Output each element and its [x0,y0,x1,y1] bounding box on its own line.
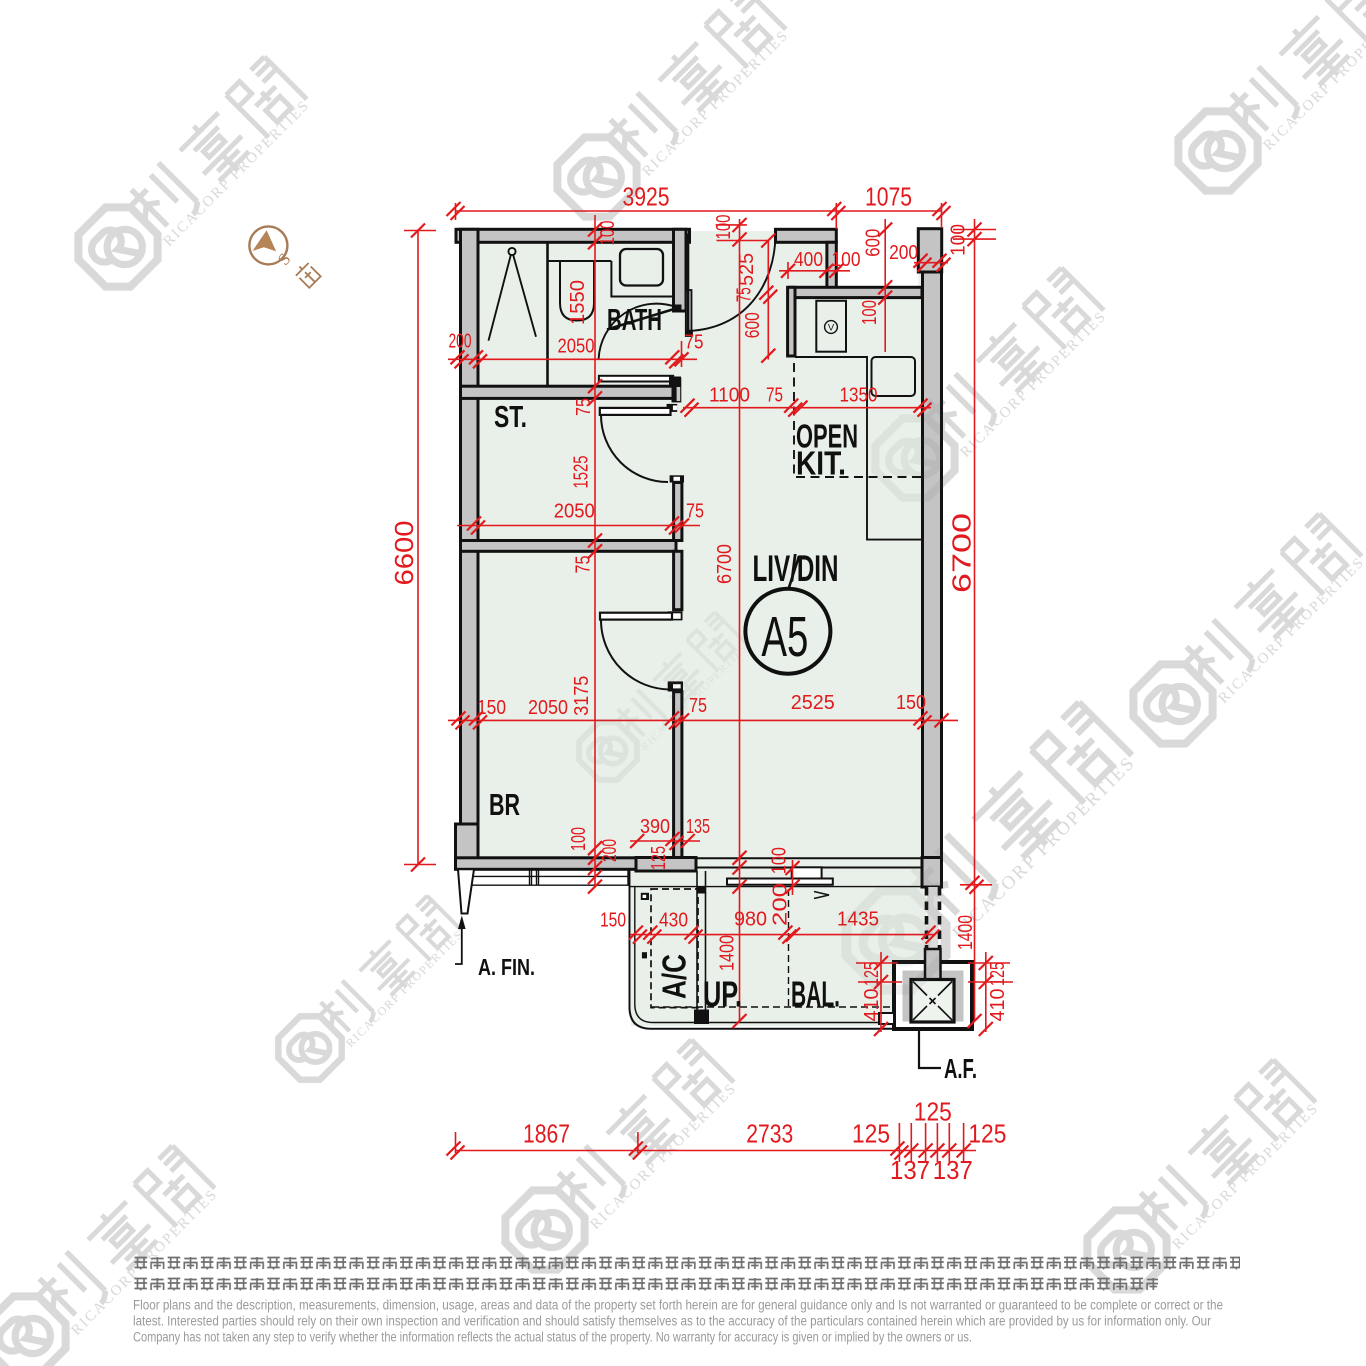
svg-text:200: 200 [598,839,621,862]
svg-text:6700: 6700 [713,544,736,584]
svg-text:75: 75 [572,556,595,574]
svg-text:6700: 6700 [947,513,977,593]
svg-text:2050: 2050 [528,696,568,719]
svg-text:410: 410 [986,989,1009,1022]
svg-text:1100: 1100 [709,384,750,407]
svg-text:2050: 2050 [554,499,595,522]
svg-text:A/C: A/C [656,954,693,999]
svg-text:390: 390 [640,815,670,838]
svg-text:1525: 1525 [570,456,593,489]
svg-text:150: 150 [896,691,926,714]
svg-text:200: 200 [769,883,792,926]
svg-text:A.F.: A.F. [944,1053,977,1084]
svg-text:A5: A5 [761,605,808,669]
svg-text:6600: 6600 [389,521,419,586]
svg-text:A. FIN.: A. FIN. [478,954,535,980]
svg-text:1350: 1350 [840,384,878,407]
svg-text:100: 100 [768,847,791,874]
svg-text:200: 200 [449,330,472,353]
svg-text:BR: BR [489,787,520,822]
svg-text:200: 200 [889,241,918,264]
svg-text:2525: 2525 [791,691,835,714]
svg-text:75: 75 [733,287,756,302]
svg-text:125: 125 [852,1119,890,1149]
svg-text:KIT.: KIT. [796,445,846,482]
svg-text:BAL.: BAL. [791,974,840,1015]
svg-text:125: 125 [986,962,1009,986]
svg-text:75: 75 [685,331,704,354]
svg-text:1867: 1867 [523,1119,570,1149]
svg-text:525: 525 [735,253,758,286]
svg-text:BATH: BATH [607,302,662,337]
svg-text:600: 600 [862,229,885,257]
svg-text:75: 75 [572,398,595,416]
svg-text:latest. Interested parties sho: latest. Interested parties should rely o… [133,1314,1211,1329]
svg-text:2733: 2733 [746,1119,793,1149]
svg-text:135: 135 [686,815,710,838]
svg-text:125: 125 [968,1119,1006,1149]
svg-text:137: 137 [933,1155,973,1185]
svg-text:137: 137 [890,1155,930,1185]
svg-text:125: 125 [914,1097,952,1127]
svg-text:100: 100 [832,248,861,271]
svg-text:600: 600 [741,312,764,338]
svg-text:980: 980 [734,908,767,931]
svg-text:100: 100 [947,224,970,256]
svg-text:1400: 1400 [716,935,739,971]
svg-text:3175: 3175 [570,676,593,716]
svg-text:1075: 1075 [865,182,912,212]
svg-text:125: 125 [647,846,670,870]
svg-text:100: 100 [858,300,881,325]
svg-text:1550: 1550 [566,280,589,325]
svg-text:150: 150 [477,696,506,719]
svg-text:75: 75 [766,384,783,407]
svg-text:100: 100 [712,215,735,240]
svg-text:75: 75 [686,499,704,522]
svg-text:150: 150 [600,909,626,932]
svg-text:ST.: ST. [494,399,527,434]
svg-text:Floor plans and the descriptio: Floor plans and the description, measure… [133,1298,1223,1313]
svg-text:2050: 2050 [558,335,595,358]
svg-text:430: 430 [659,909,688,932]
svg-text:400: 400 [794,248,823,271]
svg-text:UP.: UP. [703,974,742,1015]
svg-text:V: V [828,322,835,333]
svg-text:Company has not taken any step: Company has not taken any step to verify… [133,1330,972,1345]
svg-text:100: 100 [567,827,590,851]
svg-text:100: 100 [596,221,619,246]
